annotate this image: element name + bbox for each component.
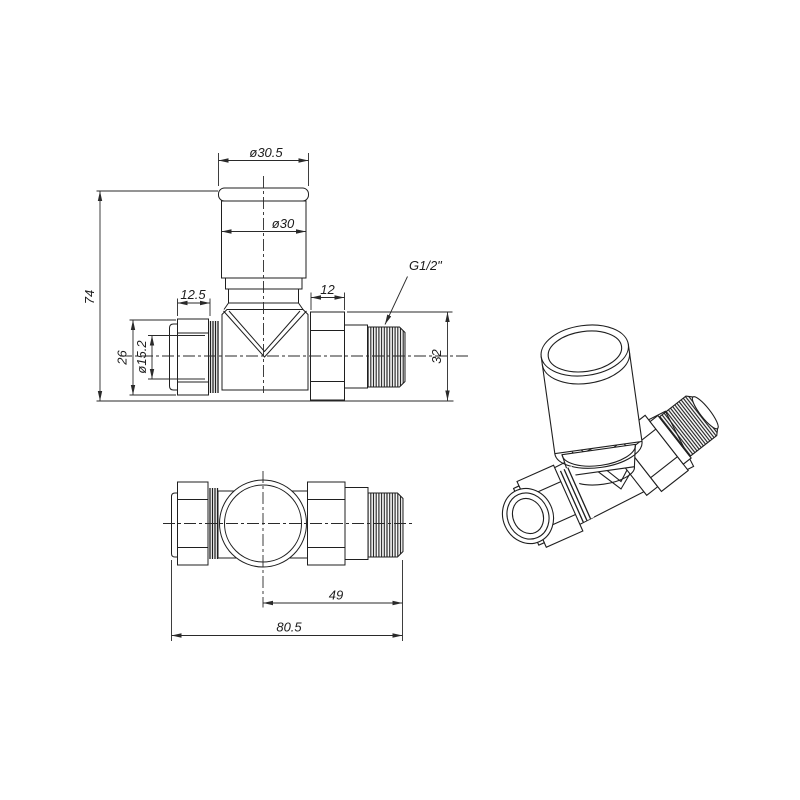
technical-drawing-canvas: ø30.5 ø30 74 12.5 12 26 ø15.2 32 G1/2"	[0, 0, 800, 800]
plan-dimensions: 49 80.5	[172, 560, 403, 641]
front-right-collar	[345, 325, 368, 388]
front-left-hex-nut	[178, 319, 209, 395]
dim-label-nut-height: 26	[115, 350, 130, 366]
dim-label-left-nut-width: 12.5	[180, 287, 206, 302]
dim-label-cap-diameter: ø30	[272, 216, 295, 231]
dim-label-cap-ridge-diameter: ø30.5	[249, 145, 283, 160]
dim-label-port-height: 32	[429, 349, 444, 364]
front-valve-body	[222, 310, 308, 391]
dim-label-overall-length: 80.5	[276, 620, 302, 635]
dim-label-center-to-end: 49	[329, 588, 343, 603]
front-male-thread	[368, 327, 406, 387]
plan-view	[163, 471, 412, 608]
front-tailpiece	[170, 324, 178, 390]
front-compression-rings	[211, 321, 219, 393]
plan-male-thread	[368, 493, 403, 557]
iso-view	[491, 320, 731, 559]
drawing-area: ø30.5 ø30 74 12.5 12 26 ø15.2 32 G1/2"	[0, 0, 800, 800]
plan-tailpiece	[172, 493, 178, 557]
front-view	[120, 176, 470, 400]
dim-label-overall-height: 74	[82, 290, 97, 304]
dim-label-right-nut-width: 12	[320, 282, 335, 297]
iso-cap	[538, 320, 647, 491]
dim-label-thread-spec: G1/2"	[409, 258, 443, 273]
dim-label-bore-diameter: ø15.2	[134, 340, 149, 374]
